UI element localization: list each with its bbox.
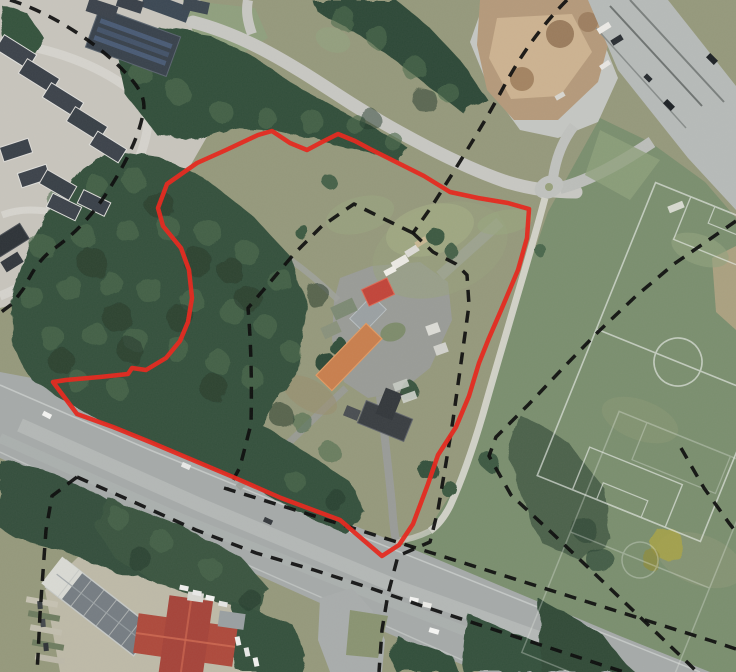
photo-grain-overlay [0, 0, 736, 672]
aerial-photo-map [0, 0, 736, 672]
property-aerial-map [0, 0, 736, 672]
